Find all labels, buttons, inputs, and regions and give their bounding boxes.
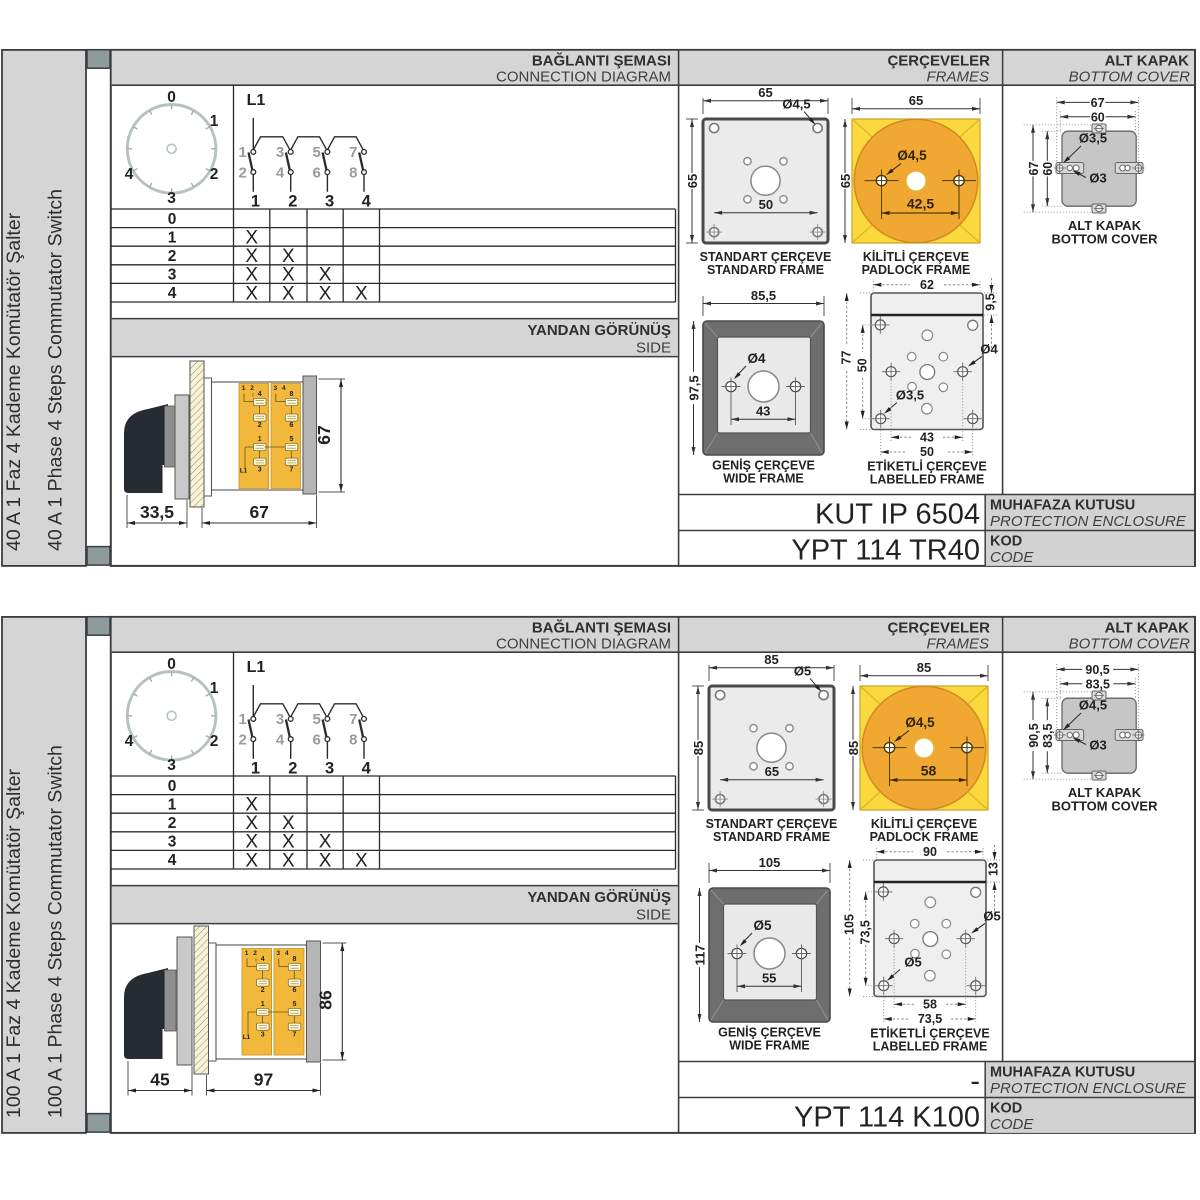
svg-text:65: 65 — [685, 174, 700, 188]
svg-text:CONNECTION DIAGRAM: CONNECTION DIAGRAM — [496, 69, 671, 86]
svg-text:ETİKETLİ ÇERÇEVE: ETİKETLİ ÇERÇEVE — [870, 1026, 989, 1041]
svg-text:X: X — [355, 850, 368, 871]
svg-text:65: 65 — [909, 93, 923, 108]
svg-text:83,5: 83,5 — [1041, 723, 1055, 747]
svg-text:73,5: 73,5 — [918, 1012, 942, 1026]
svg-text:BAĞLANTI ŞEMASI: BAĞLANTI ŞEMASI — [532, 51, 671, 69]
svg-text:45: 45 — [150, 1070, 170, 1090]
svg-text:BOTTOM COVER: BOTTOM COVER — [1069, 69, 1191, 86]
svg-text:ETİKETLİ ÇERÇEVE: ETİKETLİ ÇERÇEVE — [867, 459, 986, 474]
svg-text:Ø4,5: Ø4,5 — [1079, 698, 1107, 713]
svg-text:ALT KAPAK: ALT KAPAK — [1105, 619, 1190, 636]
svg-text:4: 4 — [261, 956, 265, 963]
svg-text:65: 65 — [765, 764, 779, 779]
svg-text:3: 3 — [325, 193, 334, 211]
svg-text:7: 7 — [290, 466, 294, 473]
svg-text:1: 1 — [251, 193, 260, 211]
svg-text:BAĞLANTI ŞEMASI: BAĞLANTI ŞEMASI — [532, 618, 671, 636]
svg-text:2: 2 — [168, 815, 177, 832]
svg-text:X: X — [282, 850, 295, 871]
svg-text:73,5: 73,5 — [859, 920, 873, 944]
svg-text:7: 7 — [349, 144, 357, 161]
svg-text:58: 58 — [923, 997, 937, 1011]
svg-text:8: 8 — [290, 391, 294, 398]
svg-text:1: 1 — [238, 144, 246, 161]
svg-text:1: 1 — [238, 711, 246, 728]
svg-text:90,5: 90,5 — [1085, 663, 1109, 677]
svg-text:KOD: KOD — [990, 1101, 1022, 1117]
svg-text:2: 2 — [261, 987, 265, 994]
svg-text:YPT 114 K100: YPT 114 K100 — [794, 1102, 980, 1134]
svg-text:60: 60 — [1091, 111, 1105, 125]
svg-text:GENİŞ ÇERÇEVE: GENİŞ ÇERÇEVE — [718, 1025, 821, 1040]
svg-text:1: 1 — [210, 680, 219, 697]
svg-text:4: 4 — [168, 285, 177, 302]
svg-text:BOTTOM COVER: BOTTOM COVER — [1052, 232, 1159, 247]
svg-text:8: 8 — [349, 731, 357, 748]
svg-text:Ø4,5: Ø4,5 — [782, 97, 810, 112]
svg-text:L1: L1 — [247, 92, 266, 109]
svg-text:STANDARD FRAME: STANDARD FRAME — [707, 263, 824, 277]
svg-text:7: 7 — [349, 711, 357, 728]
svg-text:Ø3: Ø3 — [1089, 738, 1106, 753]
svg-text:-: - — [970, 1066, 980, 1098]
svg-text:4: 4 — [276, 164, 285, 181]
svg-text:Ø4,5: Ø4,5 — [897, 148, 927, 163]
svg-text:STANDART ÇERÇEVE: STANDART ÇERÇEVE — [700, 250, 832, 264]
svg-text:3: 3 — [258, 466, 262, 473]
svg-text:0: 0 — [167, 89, 176, 106]
svg-text:100 A 1 Faz 4 Kademe Komütatör: 100 A 1 Faz 4 Kademe Komütatör Şalter — [3, 768, 25, 1118]
svg-text:58: 58 — [921, 763, 937, 779]
svg-text:3: 3 — [168, 834, 177, 851]
svg-text:43: 43 — [756, 404, 770, 419]
svg-text:Ø3,5: Ø3,5 — [1079, 131, 1107, 146]
svg-text:86: 86 — [316, 990, 336, 1010]
svg-text:KUT IP 6504: KUT IP 6504 — [815, 499, 980, 531]
svg-text:85: 85 — [917, 660, 931, 675]
svg-text:1: 1 — [261, 1001, 265, 1008]
svg-text:2: 2 — [210, 733, 219, 750]
svg-text:CONNECTION DIAGRAM: CONNECTION DIAGRAM — [496, 636, 671, 653]
svg-text:3: 3 — [273, 385, 277, 392]
svg-text:LABELLED FRAME: LABELLED FRAME — [870, 473, 985, 487]
svg-text:1: 1 — [251, 760, 260, 778]
svg-text:FRAMES: FRAMES — [926, 69, 989, 86]
svg-text:60: 60 — [1041, 162, 1055, 176]
svg-text:X: X — [319, 850, 332, 871]
svg-text:3: 3 — [276, 711, 284, 728]
svg-text:67: 67 — [249, 502, 268, 522]
svg-text:83,5: 83,5 — [1086, 678, 1110, 692]
svg-text:8: 8 — [293, 956, 297, 963]
svg-text:KİLİTLİ ÇERÇEVE: KİLİTLİ ÇERÇEVE — [871, 816, 977, 831]
svg-text:PADLOCK FRAME: PADLOCK FRAME — [870, 830, 979, 844]
svg-text:67: 67 — [1091, 96, 1105, 110]
svg-text:2: 2 — [250, 385, 254, 392]
svg-text:13: 13 — [987, 862, 1001, 876]
svg-text:L1: L1 — [247, 659, 266, 676]
svg-text:1: 1 — [168, 229, 177, 246]
svg-text:1: 1 — [245, 950, 249, 957]
svg-text:50: 50 — [920, 445, 934, 459]
svg-text:6: 6 — [313, 164, 321, 181]
svg-text:X: X — [355, 283, 368, 304]
svg-text:85: 85 — [846, 741, 861, 755]
svg-text:4: 4 — [362, 760, 372, 778]
svg-text:6: 6 — [313, 731, 321, 748]
svg-text:X: X — [319, 283, 332, 304]
svg-text:3: 3 — [168, 267, 177, 284]
svg-text:LABELLED FRAME: LABELLED FRAME — [873, 1040, 988, 1054]
svg-text:ÇERÇEVELER: ÇERÇEVELER — [887, 52, 990, 69]
svg-text:62: 62 — [920, 278, 934, 292]
svg-text:9,5: 9,5 — [984, 293, 998, 310]
svg-text:Ø4: Ø4 — [980, 342, 998, 357]
svg-text:5: 5 — [290, 436, 294, 443]
svg-text:GENİŞ ÇERÇEVE: GENİŞ ÇERÇEVE — [712, 458, 815, 473]
svg-text:BOTTOM COVER: BOTTOM COVER — [1069, 636, 1191, 653]
svg-text:85: 85 — [764, 652, 778, 667]
svg-text:ALT KAPAK: ALT KAPAK — [1105, 52, 1190, 69]
svg-text:97: 97 — [254, 1070, 273, 1090]
svg-text:4: 4 — [168, 852, 177, 869]
svg-text:67: 67 — [314, 425, 334, 444]
svg-text:5: 5 — [313, 711, 321, 728]
svg-text:2: 2 — [253, 950, 257, 957]
svg-text:0: 0 — [168, 778, 177, 795]
svg-text:40 A 1 Faz 4 Kademe Komütatör: 40 A 1 Faz 4 Kademe Komütatör Şalter — [3, 212, 25, 551]
svg-text:90: 90 — [923, 845, 937, 859]
svg-text:Ø3: Ø3 — [1089, 171, 1106, 186]
svg-text:5: 5 — [293, 1001, 297, 1008]
svg-text:40 A 1 Phase 4 Steps Commutato: 40 A 1 Phase 4 Steps Commutator Switch — [45, 189, 67, 551]
svg-text:4: 4 — [362, 193, 372, 211]
svg-text:BOTTOM COVER: BOTTOM COVER — [1052, 799, 1159, 814]
svg-text:Ø3,5: Ø3,5 — [896, 388, 924, 403]
svg-text:7: 7 — [293, 1031, 297, 1038]
svg-text:YPT 114 TR40: YPT 114 TR40 — [791, 535, 980, 567]
svg-text:42,5: 42,5 — [907, 196, 934, 212]
svg-text:Ø5: Ø5 — [904, 955, 921, 970]
svg-text:PROTECTION ENCLOSURE: PROTECTION ENCLOSURE — [990, 513, 1187, 530]
svg-text:117: 117 — [692, 945, 707, 966]
svg-text:L1: L1 — [240, 468, 248, 475]
svg-text:Ø4: Ø4 — [747, 351, 766, 366]
svg-text:Ø5: Ø5 — [753, 918, 772, 933]
svg-text:Ø4,5: Ø4,5 — [905, 715, 935, 730]
svg-text:CODE: CODE — [990, 1116, 1034, 1133]
svg-text:Ø5: Ø5 — [794, 664, 811, 679]
svg-text:100 A 1 Phase 4 Steps Commutat: 100 A 1 Phase 4 Steps Commutator Switch — [45, 745, 67, 1118]
svg-text:KİLİTLİ ÇERÇEVE: KİLİTLİ ÇERÇEVE — [863, 249, 969, 264]
svg-text:105: 105 — [843, 914, 857, 935]
svg-text:PROTECTION ENCLOSURE: PROTECTION ENCLOSURE — [990, 1080, 1187, 1097]
svg-text:77: 77 — [840, 351, 854, 365]
svg-text:2: 2 — [210, 166, 219, 183]
svg-text:YANDAN GÖRÜNÜŞ: YANDAN GÖRÜNÜŞ — [527, 322, 671, 339]
svg-text:2: 2 — [288, 193, 297, 211]
svg-text:1: 1 — [258, 436, 262, 443]
svg-text:105: 105 — [759, 855, 781, 870]
svg-text:90,5: 90,5 — [1027, 723, 1041, 747]
svg-text:WIDE FRAME: WIDE FRAME — [723, 472, 804, 486]
svg-text:X: X — [282, 283, 295, 304]
svg-text:2: 2 — [168, 248, 177, 265]
svg-text:MUHAFAZA KUTUSU: MUHAFAZA KUTUSU — [990, 498, 1135, 514]
svg-text:1: 1 — [242, 385, 246, 392]
svg-text:4: 4 — [285, 950, 289, 957]
svg-text:3: 3 — [167, 190, 176, 207]
svg-text:L1: L1 — [243, 1034, 251, 1041]
svg-text:55: 55 — [762, 971, 776, 986]
svg-text:6: 6 — [290, 422, 294, 429]
svg-text:3: 3 — [276, 144, 284, 161]
svg-text:85: 85 — [691, 741, 706, 755]
svg-text:4: 4 — [282, 385, 286, 392]
svg-text:X: X — [245, 283, 258, 304]
svg-text:1: 1 — [168, 796, 177, 813]
svg-text:3: 3 — [325, 760, 334, 778]
svg-text:1: 1 — [210, 113, 219, 130]
svg-text:X: X — [245, 850, 258, 871]
svg-text:STANDARD FRAME: STANDARD FRAME — [713, 830, 830, 844]
svg-text:4: 4 — [258, 391, 262, 398]
svg-text:3: 3 — [276, 950, 280, 957]
svg-text:3: 3 — [167, 757, 176, 774]
svg-text:2: 2 — [238, 164, 246, 181]
svg-text:65: 65 — [838, 174, 853, 188]
svg-text:4: 4 — [125, 733, 134, 750]
svg-text:SIDE: SIDE — [636, 339, 671, 356]
svg-text:Ø5: Ø5 — [983, 909, 1000, 924]
svg-text:0: 0 — [167, 656, 176, 673]
svg-text:2: 2 — [238, 731, 246, 748]
svg-text:67: 67 — [1027, 162, 1041, 176]
svg-text:5: 5 — [313, 144, 321, 161]
svg-text:SIDE: SIDE — [636, 906, 671, 923]
svg-text:MUHAFAZA KUTUSU: MUHAFAZA KUTUSU — [990, 1065, 1135, 1081]
svg-text:2: 2 — [258, 422, 262, 429]
svg-text:8: 8 — [349, 164, 357, 181]
svg-text:4: 4 — [125, 166, 134, 183]
svg-text:0: 0 — [168, 211, 177, 228]
svg-text:CODE: CODE — [990, 549, 1034, 566]
svg-text:3: 3 — [261, 1031, 265, 1038]
svg-text:YANDAN GÖRÜNÜŞ: YANDAN GÖRÜNÜŞ — [527, 889, 671, 906]
svg-text:97,5: 97,5 — [686, 375, 701, 400]
svg-text:KOD: KOD — [990, 534, 1022, 550]
svg-text:50: 50 — [759, 197, 773, 212]
svg-text:WIDE FRAME: WIDE FRAME — [729, 1039, 810, 1053]
svg-text:FRAMES: FRAMES — [926, 636, 989, 653]
svg-text:65: 65 — [758, 85, 772, 100]
svg-text:STANDART ÇERÇEVE: STANDART ÇERÇEVE — [706, 817, 838, 831]
svg-text:43: 43 — [920, 430, 934, 444]
svg-text:4: 4 — [276, 731, 285, 748]
svg-text:6: 6 — [293, 987, 297, 994]
svg-text:85,5: 85,5 — [751, 288, 776, 303]
svg-text:50: 50 — [856, 358, 870, 372]
svg-text:PADLOCK FRAME: PADLOCK FRAME — [862, 263, 971, 277]
svg-text:2: 2 — [288, 760, 297, 778]
svg-text:33,5: 33,5 — [140, 502, 174, 522]
svg-text:ÇERÇEVELER: ÇERÇEVELER — [887, 619, 990, 636]
